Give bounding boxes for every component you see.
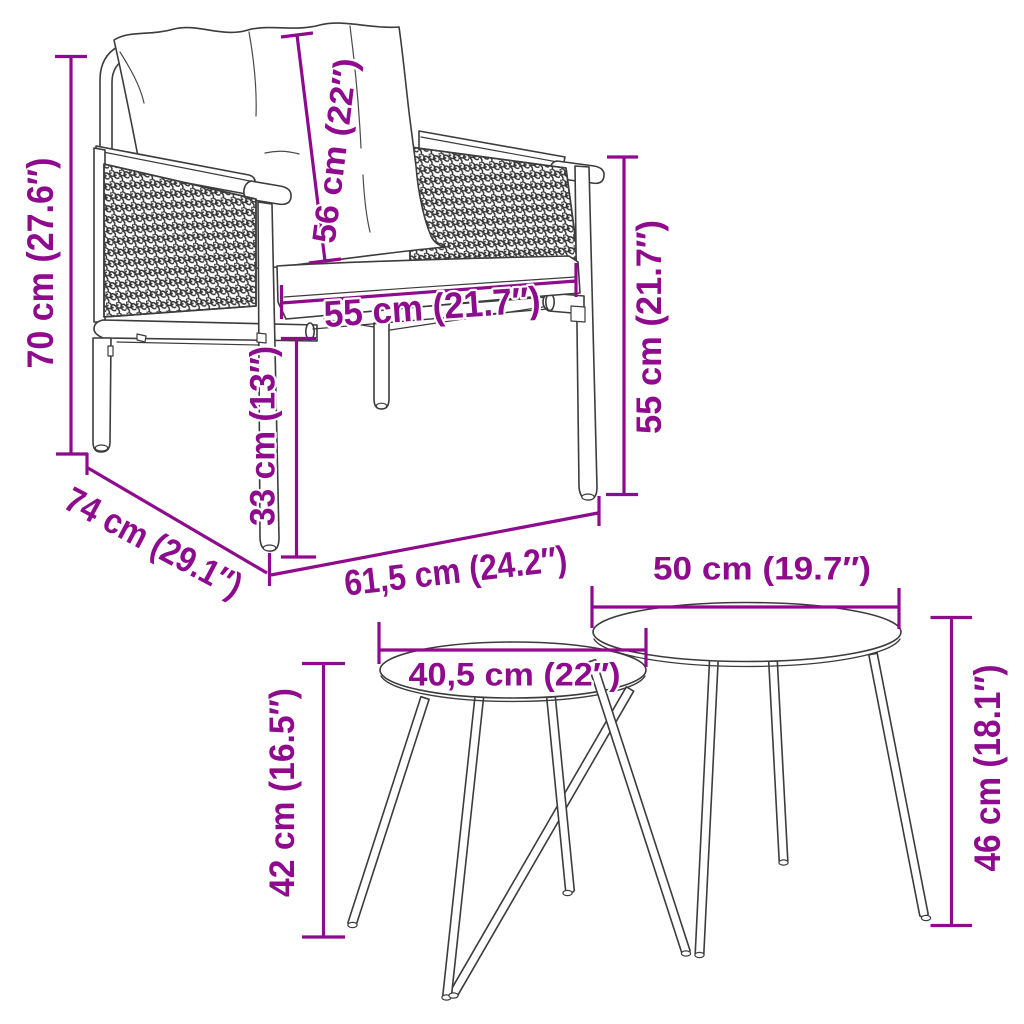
svg-text:46 cm (18.1″): 46 cm (18.1″) bbox=[967, 665, 1008, 872]
svg-text:74 cm (29.1″): 74 cm (29.1″) bbox=[58, 479, 249, 606]
svg-text:33 cm (13″): 33 cm (13″) bbox=[244, 346, 283, 526]
svg-text:42 cm (16.5″): 42 cm (16.5″) bbox=[262, 688, 302, 897]
svg-text:61,5 cm (24.2″): 61,5 cm (24.2″) bbox=[342, 538, 569, 604]
svg-text:50 cm (19.7″): 50 cm (19.7″) bbox=[653, 551, 871, 587]
svg-text:55 cm (21.7″): 55 cm (21.7″) bbox=[629, 220, 669, 434]
svg-text:40,5 cm (22″): 40,5 cm (22″) bbox=[409, 657, 621, 693]
svg-text:70 cm (27.6″): 70 cm (27.6″) bbox=[20, 158, 61, 369]
